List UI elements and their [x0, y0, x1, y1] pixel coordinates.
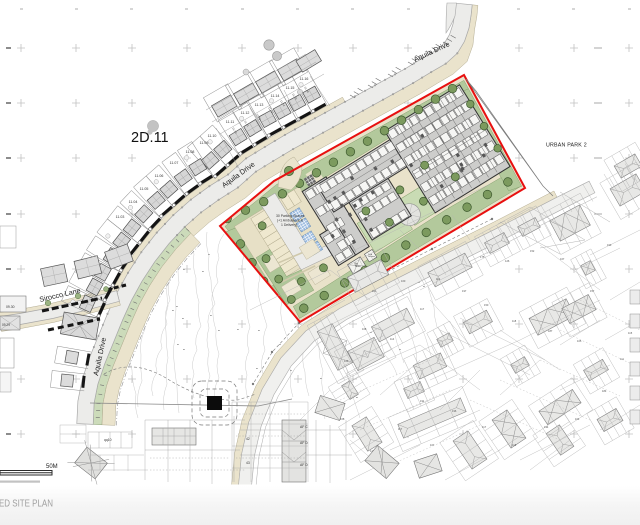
svg-text:Store: Store [355, 265, 361, 268]
svg-text:11.14: 11.14 [271, 94, 280, 98]
svg-text:187: 187 [548, 329, 553, 333]
svg-text:111: 111 [620, 357, 624, 361]
svg-text:175: 175 [480, 255, 485, 259]
svg-text:129: 129 [344, 359, 349, 363]
svg-text:157: 157 [590, 289, 595, 293]
svg-text:11.11: 11.11 [226, 120, 234, 124]
svg-text:101: 101 [372, 289, 377, 293]
svg-text:URBAN PARK 2: URBAN PARK 2 [546, 143, 587, 149]
svg-text:AF D: AF D [300, 441, 308, 445]
svg-text:194: 194 [544, 425, 549, 429]
svg-text:117: 117 [398, 427, 403, 431]
svg-text:1 Delivery): 1 Delivery) [281, 223, 297, 227]
svg-text:2D.11: 2D.11 [131, 130, 169, 146]
svg-text:11.12: 11.12 [241, 111, 250, 115]
svg-text:107: 107 [430, 443, 435, 447]
svg-text:150: 150 [484, 303, 489, 307]
svg-text:11.16: 11.16 [300, 77, 309, 81]
svg-text:118: 118 [512, 319, 517, 323]
svg-text:117: 117 [420, 307, 425, 311]
svg-text:11.05: 11.05 [140, 187, 149, 191]
svg-text:118: 118 [512, 443, 517, 447]
svg-text:117: 117 [482, 425, 487, 429]
svg-text:104: 104 [575, 417, 580, 421]
svg-text:114: 114 [436, 277, 441, 281]
svg-text:160: 160 [401, 279, 406, 283]
svg-text:193: 193 [607, 243, 612, 247]
svg-text:105: 105 [577, 339, 582, 343]
svg-text:196: 196 [452, 409, 457, 413]
svg-text:(+1 Ambulance &: (+1 Ambulance & [277, 219, 304, 223]
svg-text:ED SITE PLAN: ED SITE PLAN [0, 499, 53, 510]
svg-text:152: 152 [530, 249, 535, 253]
svg-text:11.03: 11.03 [116, 215, 125, 219]
svg-text:114: 114 [390, 337, 395, 341]
svg-text:191: 191 [420, 399, 425, 403]
svg-text:11.08: 11.08 [186, 150, 195, 154]
svg-text:11.07: 11.07 [170, 161, 179, 165]
svg-text:11.06: 11.06 [155, 174, 164, 178]
svg-text:115: 115 [628, 331, 633, 335]
svg-text:AF C: AF C [300, 425, 308, 429]
svg-text:qq10: qq10 [104, 438, 112, 442]
svg-text:197: 197 [462, 289, 467, 293]
svg-text:09.29: 09.29 [2, 323, 10, 327]
svg-text:168: 168 [362, 327, 367, 331]
svg-text:11.15: 11.15 [286, 86, 295, 90]
svg-text:09.30: 09.30 [6, 305, 15, 309]
svg-text:30 Parking Spaces: 30 Parking Spaces [276, 214, 305, 218]
svg-text:11.10: 11.10 [208, 134, 217, 138]
svg-text:167: 167 [560, 257, 565, 261]
svg-text:42: 42 [246, 437, 250, 441]
svg-text:11.04: 11.04 [129, 200, 138, 204]
svg-text:AF D: AF D [300, 463, 308, 467]
svg-text:184: 184 [602, 389, 607, 393]
svg-text:11.13: 11.13 [255, 103, 264, 107]
svg-text:43: 43 [246, 461, 250, 465]
svg-text:126: 126 [505, 259, 510, 263]
svg-text:11.09: 11.09 [200, 141, 209, 145]
svg-text:50M: 50M [46, 464, 58, 470]
